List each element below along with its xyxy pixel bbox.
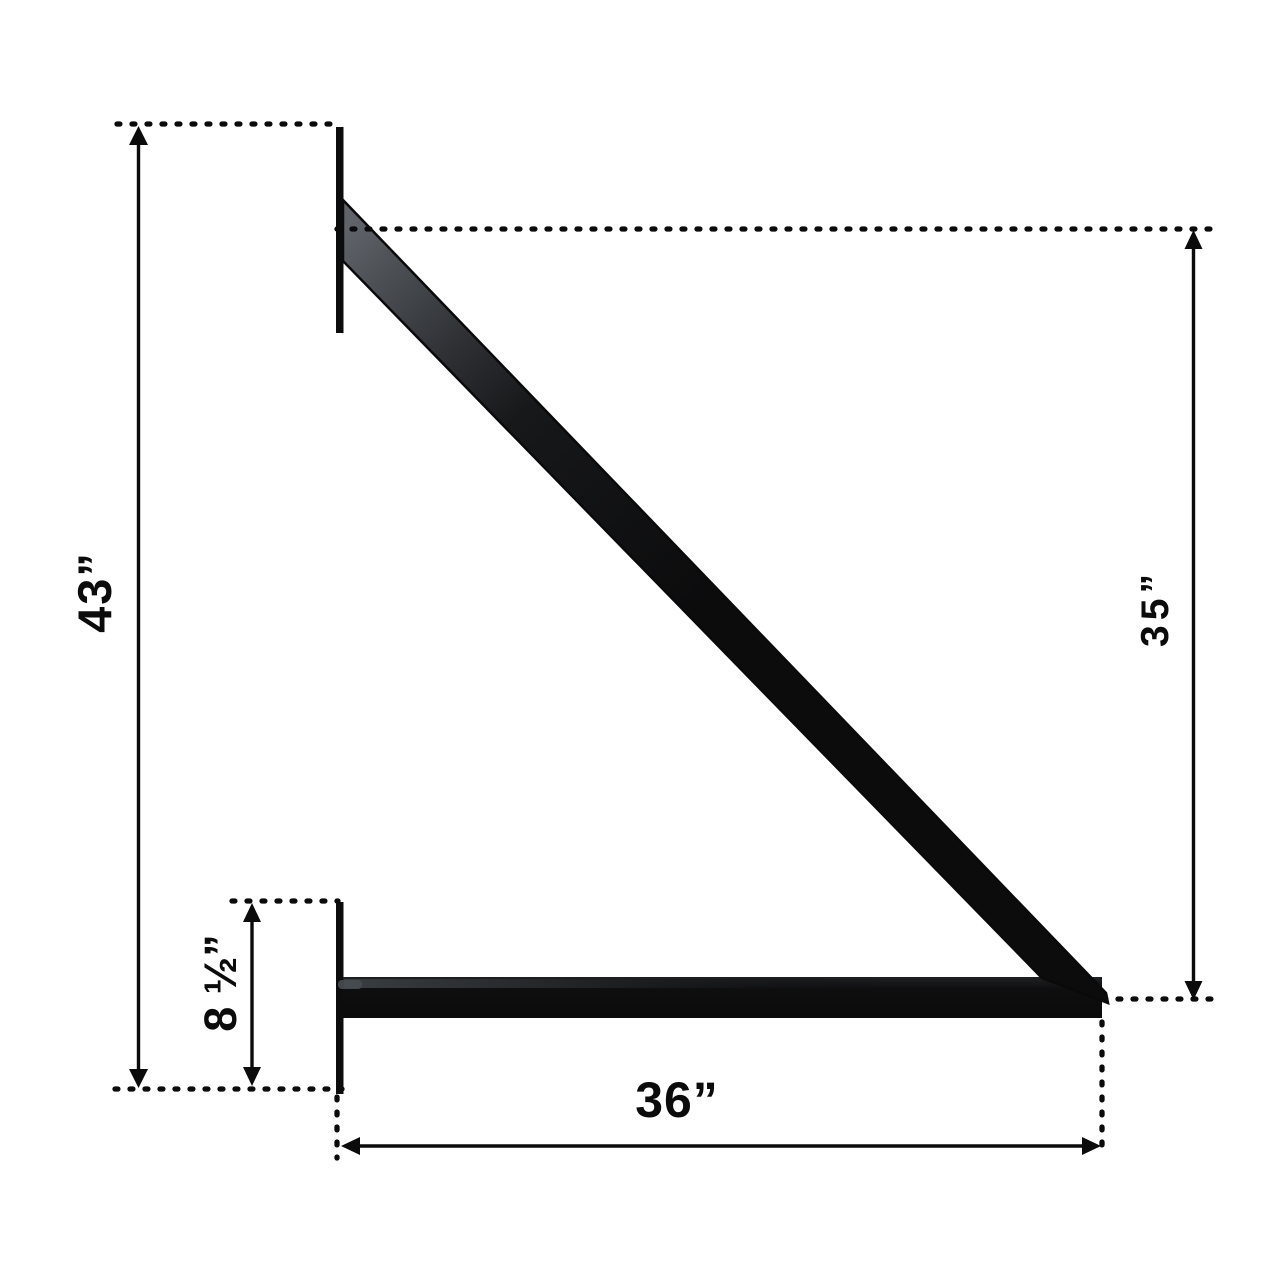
svg-text:36”: 36”: [635, 1072, 719, 1128]
svg-text:43”: 43”: [68, 551, 121, 633]
svg-text:35”: 35”: [1134, 569, 1177, 647]
svg-text:8 ½”: 8 ½”: [195, 934, 246, 1032]
